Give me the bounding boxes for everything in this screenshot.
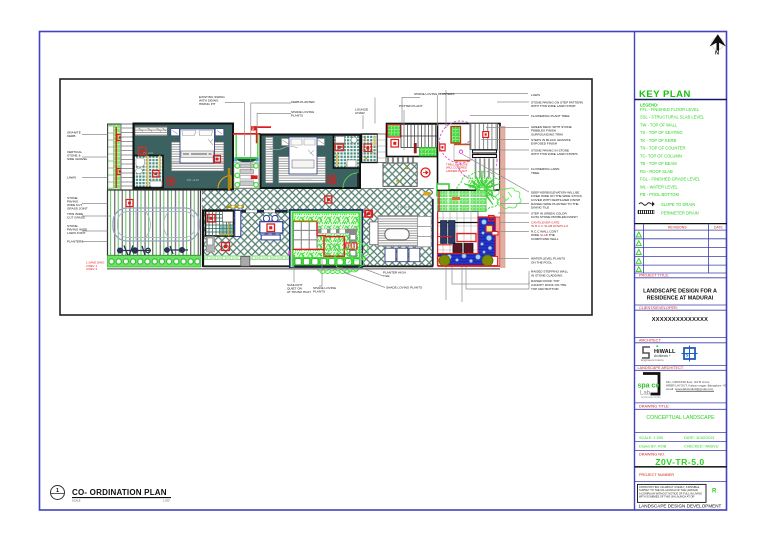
svg-text:TOP AND BOTTOM: TOP AND BOTTOM: [531, 287, 559, 291]
svg-text:email: spacelabstudio9@gmail.c: email: spacelabstudio9@gmail.com: [666, 387, 714, 391]
svg-text:WITH THIN WIDE LAWN STRIP: WITH THIN WIDE LAWN STRIP: [531, 104, 576, 108]
svg-text:spa ce: spa ce: [638, 383, 660, 390]
svg-text:IN STONE CLADDING: IN STONE CLADDING: [531, 273, 563, 277]
svg-text:KEY PLAN: KEY PLAN: [639, 89, 691, 100]
svg-text:CHECKED: VADIVU: CHECKED: VADIVU: [684, 445, 719, 449]
svg-text:FFL +0.45: FFL +0.45: [398, 205, 411, 209]
svg-text:TILE: TILE: [383, 274, 390, 278]
svg-text:LANDSCAPE ARCHITECT:: LANDSCAPE ARCHITECT:: [638, 366, 684, 370]
svg-text:S: S: [686, 353, 689, 358]
svg-text:N: N: [715, 51, 719, 57]
svg-text:2: 2: [252, 127, 254, 131]
svg-text:landscape studio: landscape studio: [641, 395, 661, 399]
svg-text:FFL +0.45: FFL +0.45: [187, 178, 199, 182]
svg-text:LANDSCAPE DESIGN DEVELOPMENT: LANDSCAPE DESIGN DEVELOPMENT: [639, 504, 722, 509]
svg-text:TN - TOP OF COUNTER: TN - TOP OF COUNTER: [640, 146, 686, 151]
svg-text:SCALE: 1:200: SCALE: 1:200: [639, 436, 663, 440]
svg-text:1: 1: [56, 488, 59, 494]
svg-text:WITH THIN WIDE LAWN STRIPS: WITH THIN WIDE LAWN STRIPS: [531, 152, 578, 156]
svg-text:TW - TOP OF WALL: TW - TOP OF WALL: [640, 122, 678, 127]
svg-text:LAWN JOINT: LAWN JOINT: [67, 231, 86, 235]
svg-text:FFL +0.45: FFL +0.45: [300, 177, 312, 181]
svg-text:PLANTS: PLANTS: [313, 290, 325, 294]
svg-text:WL - WATER LEVEL: WL - WATER LEVEL: [640, 184, 679, 189]
svg-text:REVISIONS: REVISIONS: [668, 225, 687, 229]
svg-text:CHAIR: CHAIR: [355, 111, 365, 115]
svg-text:Drawn BY: ROB: Drawn BY: ROB: [639, 445, 667, 449]
svg-text:LADDER PLANT: LADDER PLANT: [446, 169, 467, 173]
svg-text:PROJECT TITLE:: PROJECT TITLE:: [639, 274, 669, 278]
svg-text:PERIMETER DRAIN: PERIMETER DRAIN: [661, 210, 699, 215]
svg-text:SURROUNDING TRIM: SURROUNDING TRIM: [531, 132, 563, 136]
svg-text:XXXXXXXXXXXXXX: XXXXXXXXXXXXXX: [652, 317, 708, 323]
svg-text:KOTA STONE PROBLEM FINISH: KOTA STONE PROBLEM FINISH: [531, 215, 577, 219]
svg-text:TC- TOP OF COLUMN: TC- TOP OF COLUMN: [640, 153, 682, 158]
svg-text:KERB: KERB: [67, 134, 75, 138]
svg-text:KERB PLANTER: KERB PLANTER: [291, 100, 315, 104]
svg-text:CO- ORDINATION PLAN: CO- ORDINATION PLAN: [72, 488, 167, 497]
svg-text:SIDE GRAVEL: SIDE GRAVEL: [67, 157, 88, 161]
svg-text:RS - ROOF SLAB: RS - ROOF SLAB: [640, 169, 673, 174]
svg-text:CLIENT/DEVELOPER:: CLIENT/DEVELOPER:: [639, 306, 678, 310]
svg-text:HIDING PIT: HIDING PIT: [199, 102, 216, 106]
svg-text:FFL - FINISHED FLOOR LEVEL: FFL - FINISHED FLOOR LEVEL: [640, 107, 700, 112]
svg-text:SCALE: SCALE: [72, 499, 81, 503]
svg-text:CUT GRASS: CUT GRASS: [67, 216, 85, 220]
svg-text:SLOPE TO DRAIN: SLOPE TO DRAIN: [661, 202, 695, 207]
svg-text:PROJECT NUMBER: PROJECT NUMBER: [639, 473, 674, 477]
svg-text:TB - TOP OF BEAM: TB - TOP OF BEAM: [640, 161, 677, 166]
svg-text:WITH SCHEMES OF THIS UN-LAUNCH: WITH SCHEMES OF THIS UN-LAUNCH AT OR: [639, 495, 694, 499]
svg-text:COMPOUND WALL: COMPOUND WALL: [531, 237, 559, 241]
svg-text:Engineers Interio: Engineers Interio: [641, 358, 664, 362]
svg-text:TS - TOP OF SEATING: TS - TOP OF SEATING: [640, 130, 683, 135]
svg-text:ARCHITECT:: ARCHITECT:: [639, 339, 661, 343]
svg-text:DATE: 11/02/2021: DATE: 11/02/2021: [684, 436, 715, 440]
svg-text:COVER WITH FERTILIZER FINISH: COVER WITH FERTILIZER FINISH: [531, 198, 580, 202]
svg-text:1:200: 1:200: [163, 499, 170, 503]
svg-text:CONCEPTUAL LANDSCAPE: CONCEPTUAL LANDSCAPE: [646, 415, 715, 421]
svg-text:SHADE LOVING PLANTS: SHADE LOVING PLANTS: [386, 286, 422, 290]
svg-text:IN R.C.C SLAB DOWN 2-0: IN R.C.C SLAB DOWN 2-0: [531, 224, 568, 228]
svg-text:SSL - STRUCTURAL SLAB LEVEL: SSL - STRUCTURAL SLAB LEVEL: [640, 115, 705, 120]
svg-text:SHADE LOVING PLANTERS: SHADE LOVING PLANTERS: [414, 92, 454, 96]
svg-text:PB - POOL BOTTOM: PB - POOL BOTTOM: [640, 192, 679, 197]
svg-text:TK - TOP OF KERB: TK - TOP OF KERB: [640, 138, 676, 143]
svg-text:R: R: [712, 489, 717, 495]
svg-text:FGL - FINISHED GRADE LEVEL: FGL - FINISHED GRADE LEVEL: [640, 177, 701, 182]
svg-text:LANDSCAPE DESIGN FOR A: LANDSCAPE DESIGN FOR A: [643, 289, 717, 295]
svg-text:TREE: TREE: [531, 171, 539, 175]
svg-text:PLANTERS: PLANTERS: [67, 240, 83, 244]
svg-text:DRAWING TITLE:: DRAWING TITLE:: [639, 405, 670, 409]
svg-text:RESIDENCE AT MADURAI: RESIDENCE AT MADURAI: [647, 296, 714, 302]
svg-text:DATE: DATE: [714, 225, 724, 229]
svg-text:ON THE POOL: ON THE POOL: [531, 260, 552, 264]
svg-text:LAWN: LAWN: [531, 93, 540, 97]
svg-text:Z0V-TR-5.0: Z0V-TR-5.0: [655, 457, 704, 467]
svg-text:POTTED PLANT: POTTED PLANT: [399, 104, 422, 108]
svg-text:AT TRUNK HIGH: AT TRUNK HIGH: [287, 290, 311, 294]
svg-text:3:REV 2: 3:REV 2: [86, 267, 98, 271]
svg-text:LAWN: LAWN: [67, 176, 76, 180]
svg-text:EXPOSED FINISH: EXPOSED FINISH: [531, 141, 557, 145]
svg-text:GRASS JOINT: GRASS JOINT: [67, 207, 88, 211]
svg-text:DINING TILE: DINING TILE: [531, 206, 549, 210]
svg-text:PLANTS: PLANTS: [291, 114, 303, 118]
svg-text:FLOWERING PLANT TREE: FLOWERING PLANT TREE: [531, 114, 570, 118]
